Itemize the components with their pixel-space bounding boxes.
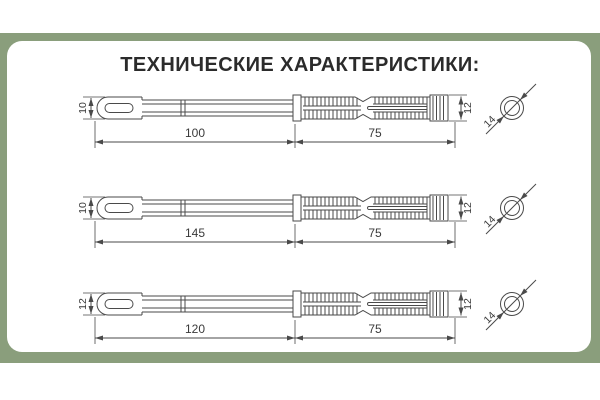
dim-shaft-length-label: 145 [185,226,205,240]
dim-head-height-label: 10 [77,102,89,114]
anchor-diagram [83,280,536,344]
dim-dowel-length-label: 75 [368,322,382,336]
dim-diameter-label: 14 [482,113,499,130]
dim-dowel-length-label: 75 [368,126,382,140]
anchor-diagram [83,84,536,148]
dim-dowel-height-label: 12 [462,298,474,310]
dim-shaft-length-label: 100 [185,126,205,140]
dim-diameter-label: 14 [482,213,499,230]
anchor-diagram [83,184,536,248]
dim-dowel-length-label: 75 [368,226,382,240]
dim-head-height-label: 12 [77,298,89,310]
dim-dowel-height-label: 12 [462,102,474,114]
technical-drawing-row-3: 12 120 75 12 14 [75,254,585,354]
dim-dowel-height-label: 12 [462,202,474,214]
dim-head-height-label: 10 [77,202,89,214]
dim-shaft-length-label: 120 [185,322,205,336]
technical-drawing-row-1: 10 100 75 12 14 [75,58,585,158]
page: { "title": "ТЕХНИЧЕСКИЕ ХАРАКТЕРИСТИКИ:"… [0,0,600,400]
technical-drawing-row-2: 10 145 75 12 14 [75,158,585,258]
dim-diameter-label: 14 [482,309,499,326]
